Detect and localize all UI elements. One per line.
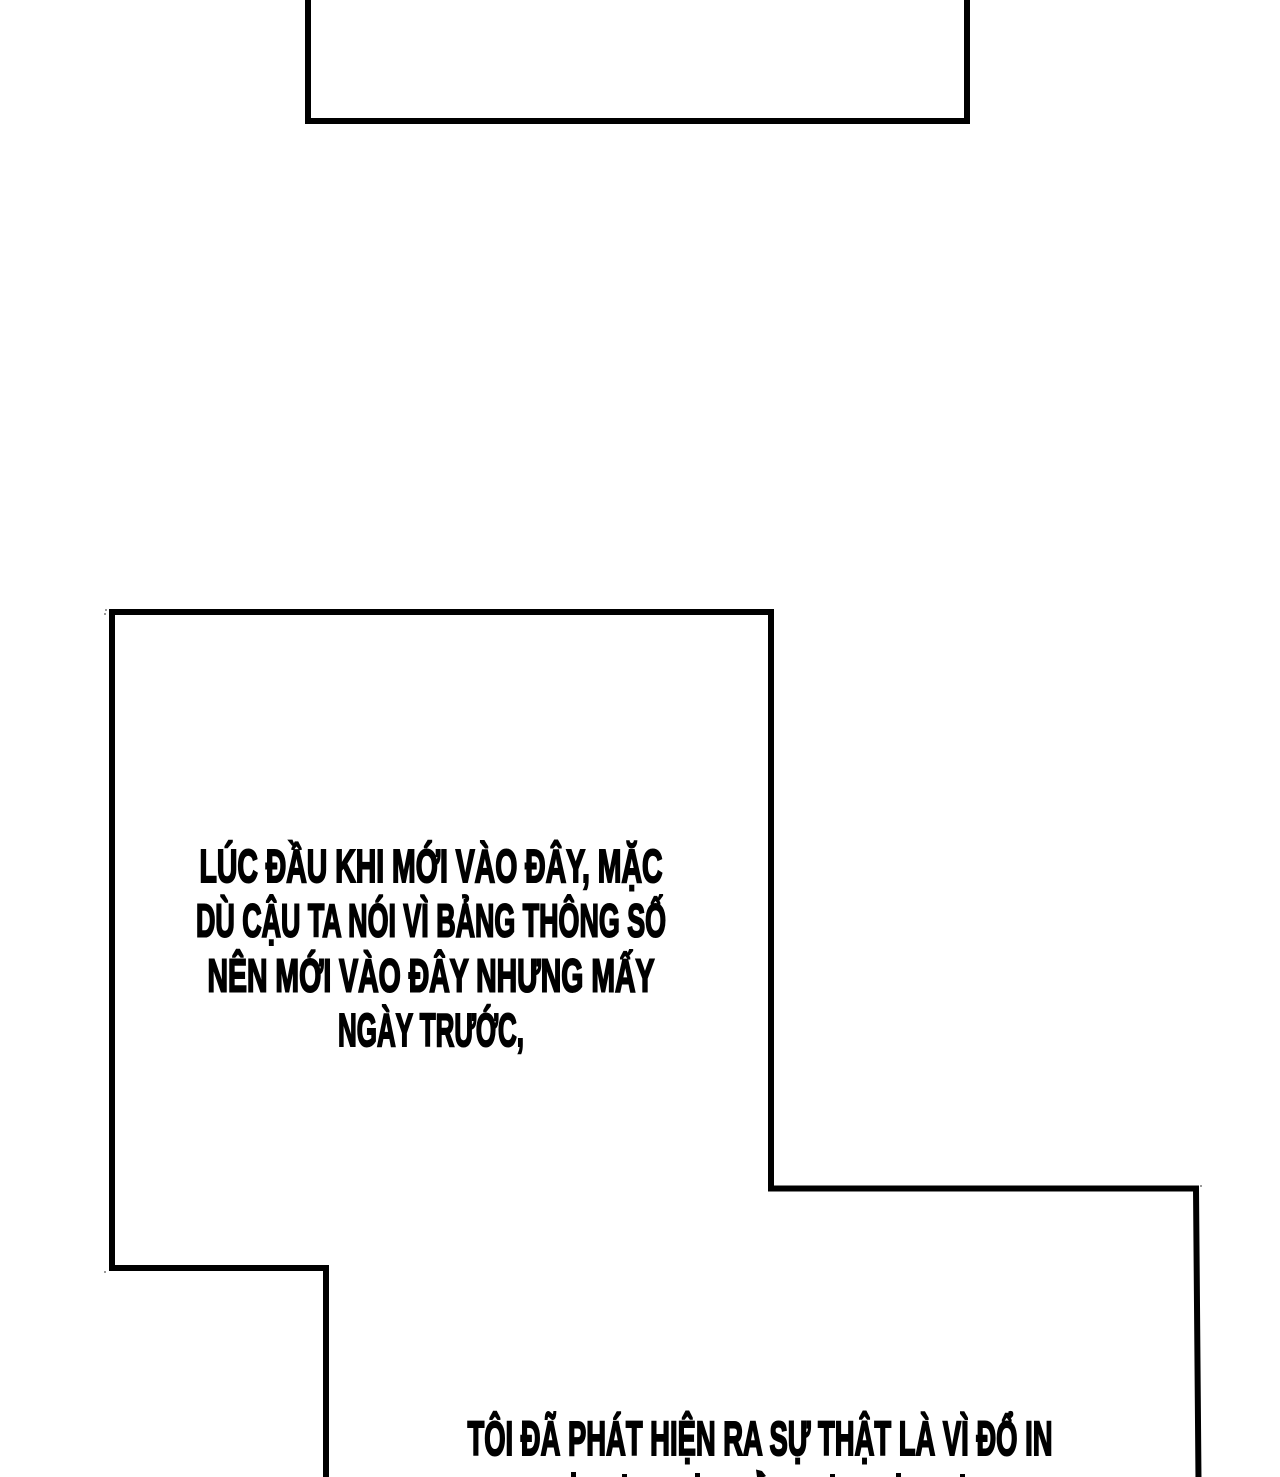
svg-text:TÔI ĐÃ PHÁT HIỆN RA SỰ THẬT LÀ: TÔI ĐÃ PHÁT HIỆN RA SỰ THẬT LÀ VÌ ĐỔ IN (468, 1411, 1053, 1466)
svg-text:NGÀY TRƯỚC,: NGÀY TRƯỚC, (338, 1004, 524, 1056)
svg-text:LÚC ĐẦU KHI MỚI VÀO ĐÂY, MẶC: LÚC ĐẦU KHI MỚI VÀO ĐÂY, MẶC (200, 840, 663, 892)
svg-text:NÊN MỚI VÀO ĐÂY NHƯNG MẤY: NÊN MỚI VÀO ĐÂY NHƯNG MẤY (208, 949, 655, 1001)
svg-text:DÙ CẬU TA NÓI VÌ BẢNG THÔNG SỐ: DÙ CẬU TA NÓI VÌ BẢNG THÔNG SỐ (196, 895, 666, 947)
